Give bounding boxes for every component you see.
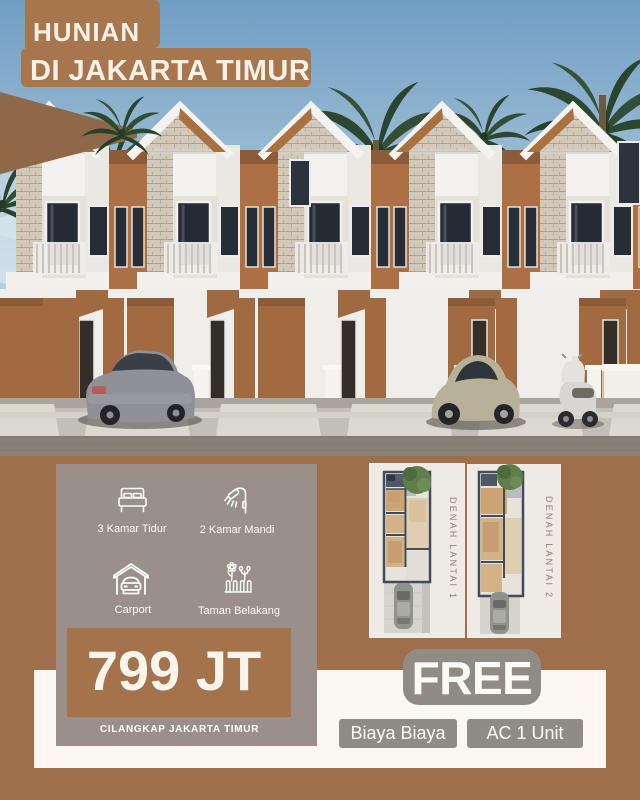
svg-text:DENAH LANTAI 2: DENAH LANTAI 2 bbox=[544, 496, 554, 599]
svg-text:DENAH LANTAI 1: DENAH LANTAI 1 bbox=[448, 497, 458, 600]
